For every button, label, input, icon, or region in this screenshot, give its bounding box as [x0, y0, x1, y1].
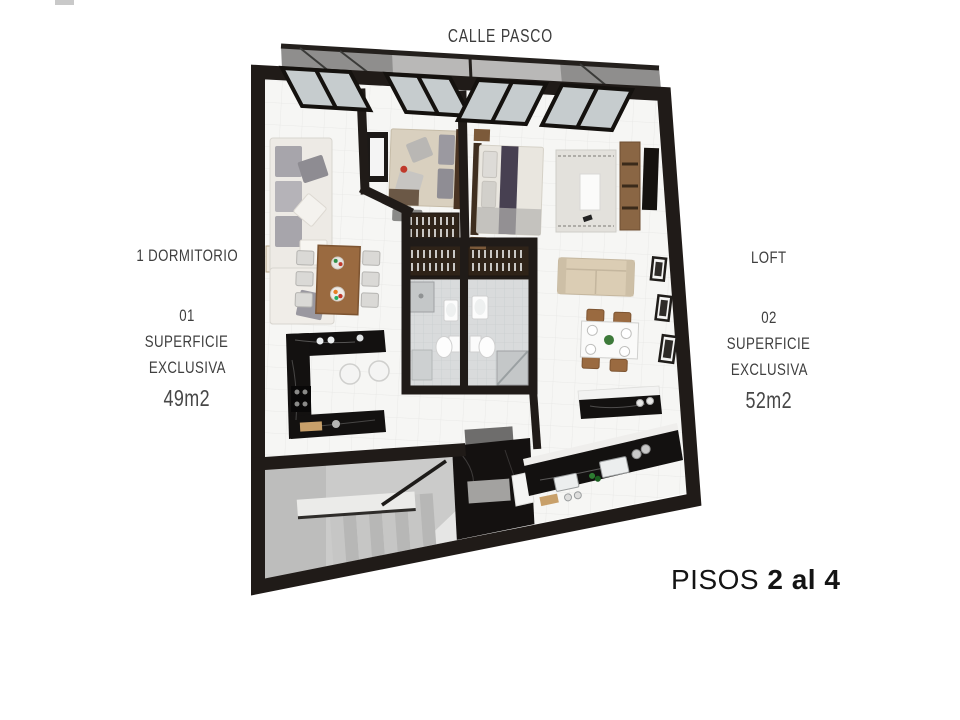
unit01-tv [366, 132, 388, 182]
unit01-label-block: 1 DORMITORIO 01 SUPERFICIE EXCLUSIVA 49m… [107, 246, 267, 412]
unit02-label-block: LOFT 02 SUPERFICIE EXCLUSIVA 52m2 [689, 248, 849, 414]
unit01-surface-line2: EXCLUSIVA [149, 355, 226, 381]
unit01-dining [295, 245, 380, 316]
unit01-number: 01 [179, 303, 195, 329]
floors-range: 2 al 4 [767, 564, 840, 595]
street-label: CALLE PASCO [40, 26, 960, 47]
unit01-area: 49m2 [164, 385, 210, 412]
unit01-surface-line1: SUPERFICIE [145, 329, 228, 355]
unit02-area: 52m2 [746, 387, 792, 414]
floors-label: PISOS 2 al 4 [671, 564, 840, 596]
bathroom-unit02 [468, 280, 530, 387]
unit02-number: 02 [761, 305, 777, 331]
unit02-bed [470, 129, 544, 251]
floors-prefix: PISOS [671, 564, 767, 595]
unit02-surface-line2: EXCLUSIVA [731, 357, 808, 383]
page: CALLE PASCO 1 DORMITORIO 01 SUPERFICIE E… [0, 0, 960, 720]
street-label-text: CALLE PASCO [447, 26, 552, 47]
unit02-type: LOFT [751, 248, 786, 268]
unit01-type: 1 DORMITORIO [136, 246, 238, 266]
unit02-sideboard [578, 386, 662, 419]
unit02-surface-line1: SUPERFICIE [727, 331, 810, 357]
bathroom-unit01 [408, 280, 461, 387]
